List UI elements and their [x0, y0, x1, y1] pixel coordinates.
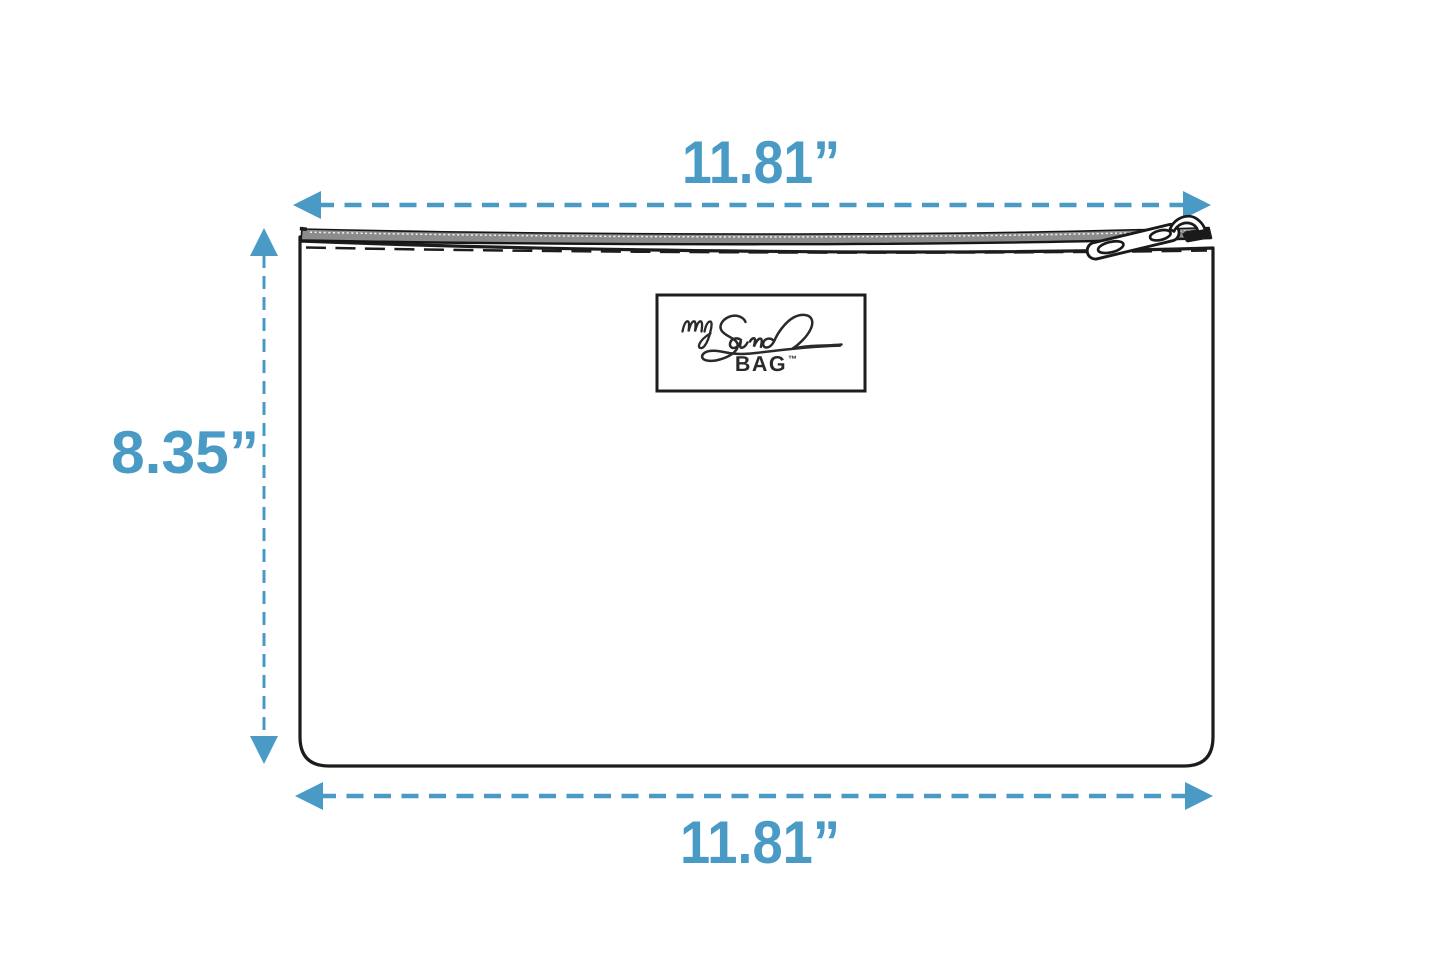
- svg-text:BAG: BAG: [735, 352, 787, 376]
- svg-text:™: ™: [788, 354, 797, 364]
- svg-text:11.81”: 11.81”: [682, 129, 840, 196]
- svg-text:11.81”: 11.81”: [680, 809, 840, 876]
- svg-text:8.35”: 8.35”: [111, 419, 259, 486]
